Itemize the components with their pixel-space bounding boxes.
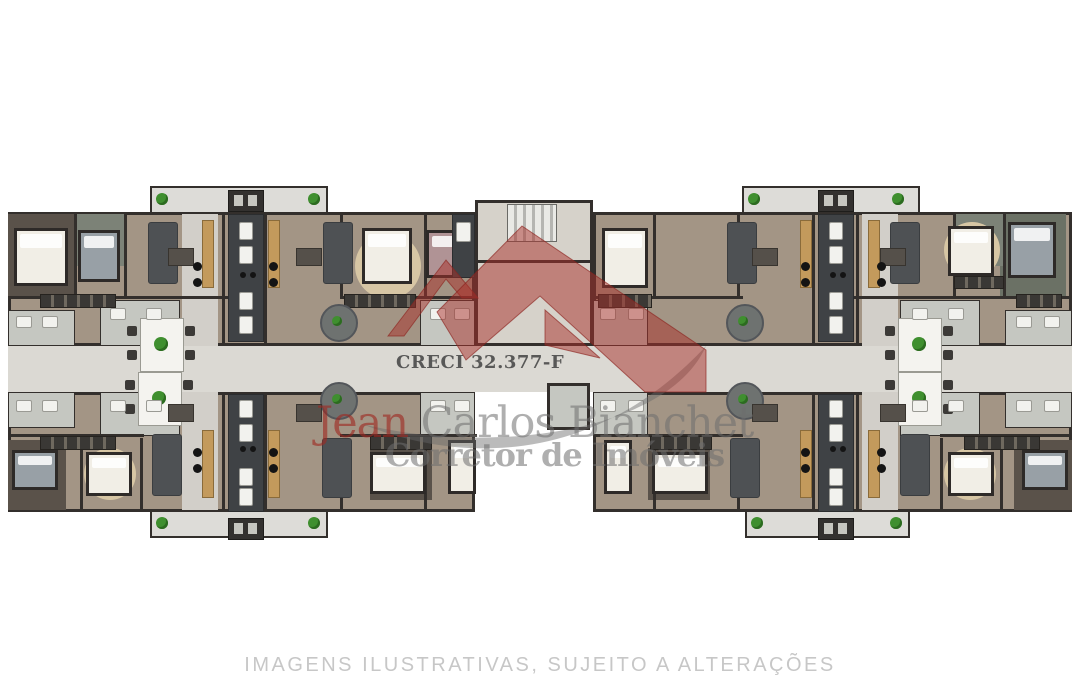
bathroom: [1005, 310, 1072, 346]
bed-icon: [948, 452, 994, 496]
disclaimer-caption: IMAGENS ILUSTRATIVAS, SUJEITO A ALTERAÇÕ…: [0, 654, 1080, 677]
wardrobe-icon: [954, 276, 1004, 289]
plant-icon: [308, 193, 320, 205]
stool-icon: [801, 464, 810, 473]
sofa-icon: [730, 438, 760, 498]
chair-icon: [183, 380, 193, 390]
pillow: [610, 446, 626, 458]
bed-icon: [14, 228, 68, 286]
floorplan-image: CRECI 32.377-F Jean Carlos Bianchet Corr…: [0, 0, 1080, 695]
sofa-icon: [322, 438, 352, 498]
bath-fixture-icon: [829, 424, 843, 442]
chair-icon: [943, 350, 953, 360]
chair-icon: [885, 380, 895, 390]
wall: [856, 392, 859, 512]
shelf-icon: [202, 220, 214, 288]
plant-icon: [332, 316, 342, 326]
stool-icon: [250, 272, 256, 278]
bath-fixture-icon: [829, 400, 843, 418]
bbq-grill-icon: [818, 518, 854, 540]
stool-icon: [193, 262, 202, 271]
pillow: [84, 236, 114, 248]
plant-icon: [154, 337, 168, 351]
bath-fixture-icon: [42, 400, 58, 412]
stool-icon: [877, 464, 886, 473]
sofa-icon: [900, 434, 930, 496]
desk-icon: [752, 248, 778, 266]
bath-fixture-icon: [456, 222, 471, 242]
bath-fixture-icon: [829, 222, 843, 240]
wall: [812, 392, 815, 512]
wall: [222, 212, 225, 346]
wardrobe-icon: [964, 436, 1040, 450]
plant-icon: [912, 337, 926, 351]
sofa-icon: [323, 222, 353, 284]
desk-icon: [880, 404, 906, 422]
stool-icon: [193, 448, 202, 457]
bath-fixture-icon: [829, 468, 843, 486]
bath-fixture-icon: [146, 400, 162, 412]
chair-icon: [125, 404, 135, 414]
stool-icon: [240, 446, 246, 452]
bbq-grill-icon: [228, 190, 264, 212]
bed-icon: [604, 440, 632, 494]
bath-fixture-icon: [239, 488, 253, 506]
plant-icon: [892, 193, 904, 205]
chair-icon: [943, 380, 953, 390]
chair-icon: [943, 326, 953, 336]
pillow: [1028, 456, 1062, 465]
stool-icon: [830, 272, 836, 278]
bed-icon: [86, 452, 132, 496]
pillow: [376, 458, 420, 467]
bath-fixture-icon: [1044, 316, 1060, 328]
bbq-grill-icon: [228, 518, 264, 540]
bath-fixture-icon: [16, 400, 32, 412]
plant-icon: [751, 517, 763, 529]
stool-icon: [240, 272, 246, 278]
bed-icon: [602, 228, 648, 288]
bath-fixture-icon: [1016, 316, 1032, 328]
bed-icon: [362, 228, 412, 284]
wall: [264, 392, 267, 512]
bath-fixture-icon: [430, 308, 446, 320]
wardrobe-icon: [650, 436, 712, 450]
bathroom: [420, 300, 475, 346]
pillow: [20, 234, 62, 248]
bath-fixture-icon: [628, 400, 644, 412]
stool-icon: [269, 448, 278, 457]
wall: [475, 260, 593, 263]
stool-icon: [840, 446, 846, 452]
stool-icon: [269, 464, 278, 473]
bathroom: [593, 392, 648, 436]
bath-fixture-icon: [239, 292, 253, 310]
bath-fixture-icon: [42, 316, 58, 328]
pillow: [18, 456, 52, 465]
pillow: [454, 446, 470, 458]
bath-fixture-icon: [628, 308, 644, 320]
bath-fixture-icon: [829, 316, 843, 334]
desk-icon: [296, 404, 322, 422]
bed-icon: [948, 226, 994, 276]
chair-icon: [125, 380, 135, 390]
wall: [124, 212, 127, 296]
bed-icon: [78, 230, 120, 282]
bath-fixture-icon: [829, 246, 843, 264]
wardrobe-icon: [598, 294, 652, 308]
chair-icon: [885, 326, 895, 336]
plant-icon: [738, 316, 748, 326]
bath-fixture-icon: [1044, 400, 1060, 412]
wall: [940, 438, 943, 512]
bath-fixture-icon: [430, 400, 446, 412]
chair-icon: [127, 326, 137, 336]
stool-icon: [801, 448, 810, 457]
wardrobe-icon: [40, 294, 116, 308]
bath-fixture-icon: [239, 424, 253, 442]
bath-fixture-icon: [239, 400, 253, 418]
bath-fixture-icon: [1016, 400, 1032, 412]
desk-icon: [168, 404, 194, 422]
wall: [74, 212, 77, 296]
stool-icon: [250, 446, 256, 452]
bath-fixture-icon: [110, 308, 126, 320]
pillow: [608, 234, 642, 248]
floorplan-render: [0, 0, 1080, 695]
bath-fixture-icon: [454, 400, 470, 412]
bath-fixture-icon: [239, 246, 253, 264]
pillow: [658, 458, 702, 467]
plant-icon: [308, 517, 320, 529]
wardrobe-icon: [1016, 294, 1062, 308]
wall: [812, 212, 815, 346]
chair-icon: [185, 326, 195, 336]
bath-fixture-icon: [600, 400, 616, 412]
wall: [140, 438, 143, 512]
wardrobe-icon: [370, 436, 432, 450]
pillow: [368, 234, 406, 247]
bed-icon: [448, 440, 476, 494]
stool-icon: [801, 262, 810, 271]
wardrobe-icon: [40, 436, 116, 450]
stool-icon: [830, 446, 836, 452]
sofa-icon: [152, 434, 182, 496]
bath-fixture-icon: [948, 400, 964, 412]
bath-fixture-icon: [146, 308, 162, 320]
stool-icon: [840, 272, 846, 278]
chair-icon: [185, 350, 195, 360]
bed-icon: [652, 452, 708, 494]
bathroom: [420, 392, 475, 436]
pillow: [954, 458, 988, 468]
desk-icon: [168, 248, 194, 266]
desk-icon: [752, 404, 778, 422]
stool-icon: [877, 262, 886, 271]
chair-icon: [885, 350, 895, 360]
bath-fixture-icon: [600, 308, 616, 320]
wall: [222, 392, 225, 512]
plant-icon: [738, 394, 748, 404]
elevator-shaft: [547, 383, 590, 430]
stool-icon: [801, 278, 810, 287]
shelf-icon: [202, 430, 214, 498]
plant-icon: [890, 517, 902, 529]
bed-icon: [1022, 450, 1068, 490]
chair-icon: [127, 350, 137, 360]
pillow: [954, 232, 988, 243]
plant-icon: [748, 193, 760, 205]
pillow: [92, 458, 126, 468]
stool-icon: [193, 278, 202, 287]
bath-fixture-icon: [110, 400, 126, 412]
bath-fixture-icon: [239, 222, 253, 240]
bed-icon: [370, 452, 426, 494]
plant-icon: [332, 394, 342, 404]
pillow: [1014, 228, 1050, 241]
plant-icon: [156, 193, 168, 205]
stool-icon: [877, 278, 886, 287]
wall: [264, 212, 267, 346]
stool-icon: [877, 448, 886, 457]
stool-icon: [269, 262, 278, 271]
bath-fixture-icon: [454, 308, 470, 320]
wardrobe-icon: [344, 294, 416, 308]
bed-icon: [12, 450, 58, 490]
bbq-grill-icon: [818, 190, 854, 212]
wall: [653, 212, 656, 296]
bath-fixture-icon: [912, 400, 928, 412]
bath-fixture-icon: [829, 292, 843, 310]
plant-icon: [156, 517, 168, 529]
stool-icon: [193, 464, 202, 473]
bath-fixture-icon: [239, 468, 253, 486]
bath-fixture-icon: [948, 308, 964, 320]
wall: [856, 212, 859, 346]
stairs-icon: [507, 204, 557, 242]
bed-icon: [1008, 222, 1056, 278]
bath-fixture-icon: [16, 316, 32, 328]
desk-icon: [296, 248, 322, 266]
bath-fixture-icon: [239, 316, 253, 334]
bath-fixture-icon: [829, 488, 843, 506]
stool-icon: [269, 278, 278, 287]
bath-fixture-icon: [912, 308, 928, 320]
